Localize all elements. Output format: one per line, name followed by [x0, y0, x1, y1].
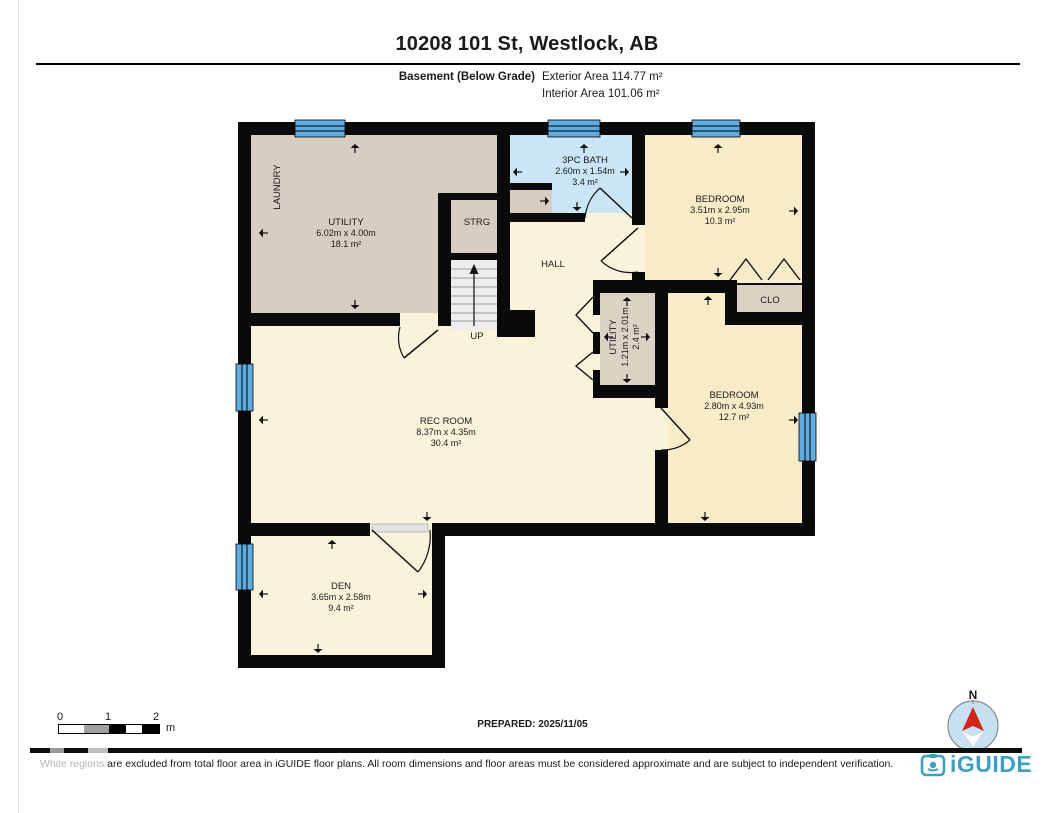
scale-bar — [58, 724, 160, 734]
floor-plan-page: 10208 101 St, Westlock, AB Basement (Bel… — [0, 0, 1054, 813]
room-area: 3.4 m² — [572, 177, 598, 187]
interior-area: Interior Area 101.06 m² — [542, 88, 660, 100]
window-icon — [692, 120, 740, 137]
window-icon — [236, 364, 253, 411]
stairs-up-label: UP — [470, 331, 483, 342]
compass-icon: N — [938, 683, 1008, 755]
exterior-area: Exterior Area 114.77 m² — [542, 71, 663, 83]
room-dim: 8.37m x 4.35m — [416, 427, 476, 437]
room-label: CLO — [760, 295, 780, 306]
page-title: 10208 101 St, Westlock, AB — [0, 33, 1054, 56]
scale-unit: m — [166, 722, 175, 734]
compass-north-label: N — [969, 688, 978, 702]
iguide-logo-text: iGUIDE — [950, 751, 1032, 778]
room-area: 10.3 m² — [705, 216, 736, 226]
page-edge-line — [18, 0, 19, 813]
footer-divider — [30, 748, 1022, 753]
floor-label: Basement (Below Grade) — [300, 71, 535, 83]
disclaimer-highlight: White regions — [40, 758, 104, 770]
scale-tick-2: 2 — [146, 711, 166, 723]
scale-remnant — [50, 748, 64, 753]
window-icon — [236, 544, 253, 590]
room-label: 3PC BATH — [562, 155, 608, 166]
room-dim: 1.21m x 2.01m — [620, 307, 630, 367]
header-divider — [36, 63, 1020, 65]
iguide-camera-icon — [920, 753, 946, 777]
scale-remnant — [88, 748, 108, 753]
scale-tick-1: 1 — [98, 711, 118, 723]
iguide-logo: iGUIDE — [920, 751, 1032, 778]
room-label: BEDROOM — [709, 390, 758, 401]
room-label: UTILITY — [608, 319, 619, 355]
room-label: BEDROOM — [695, 194, 744, 205]
room-label: STRG — [464, 217, 490, 228]
room-dim: 2.60m x 1.54m — [555, 166, 615, 176]
room-area: 2.4 m² — [631, 324, 641, 350]
floor-plan-drawing: UTILITY 6.02m x 4.00m 18.1 m² LAUNDRY ST… — [230, 113, 830, 675]
window-icon — [799, 413, 816, 461]
room-label: DEN — [331, 581, 351, 592]
scale-tick-0: 0 — [50, 711, 70, 723]
disclaimer-text: White regions are excluded from total fl… — [40, 758, 893, 770]
room-label: LAUNDRY — [272, 164, 283, 210]
room-area: 12.7 m² — [719, 412, 750, 422]
window-icon — [295, 120, 345, 137]
room-dim: 3.51m x 2.95m — [690, 205, 750, 215]
room-dim: 6.02m x 4.00m — [316, 228, 376, 238]
window-icon — [548, 120, 600, 137]
room-area: 30.4 m² — [431, 438, 462, 448]
prepared-date: PREPARED: 2025/11/05 — [430, 719, 635, 730]
disclaimer-rest: are excluded from total floor area in iG… — [104, 758, 893, 770]
room-dim: 2.80m x 4.93m — [704, 401, 764, 411]
room-label: HALL — [541, 259, 565, 270]
room-label: UTILITY — [328, 217, 364, 228]
room-area: 18.1 m² — [331, 239, 362, 249]
room-label: REC ROOM — [420, 416, 472, 427]
room-dim: 3.65m x 2.58m — [311, 592, 371, 602]
room-area: 9.4 m² — [328, 603, 354, 613]
